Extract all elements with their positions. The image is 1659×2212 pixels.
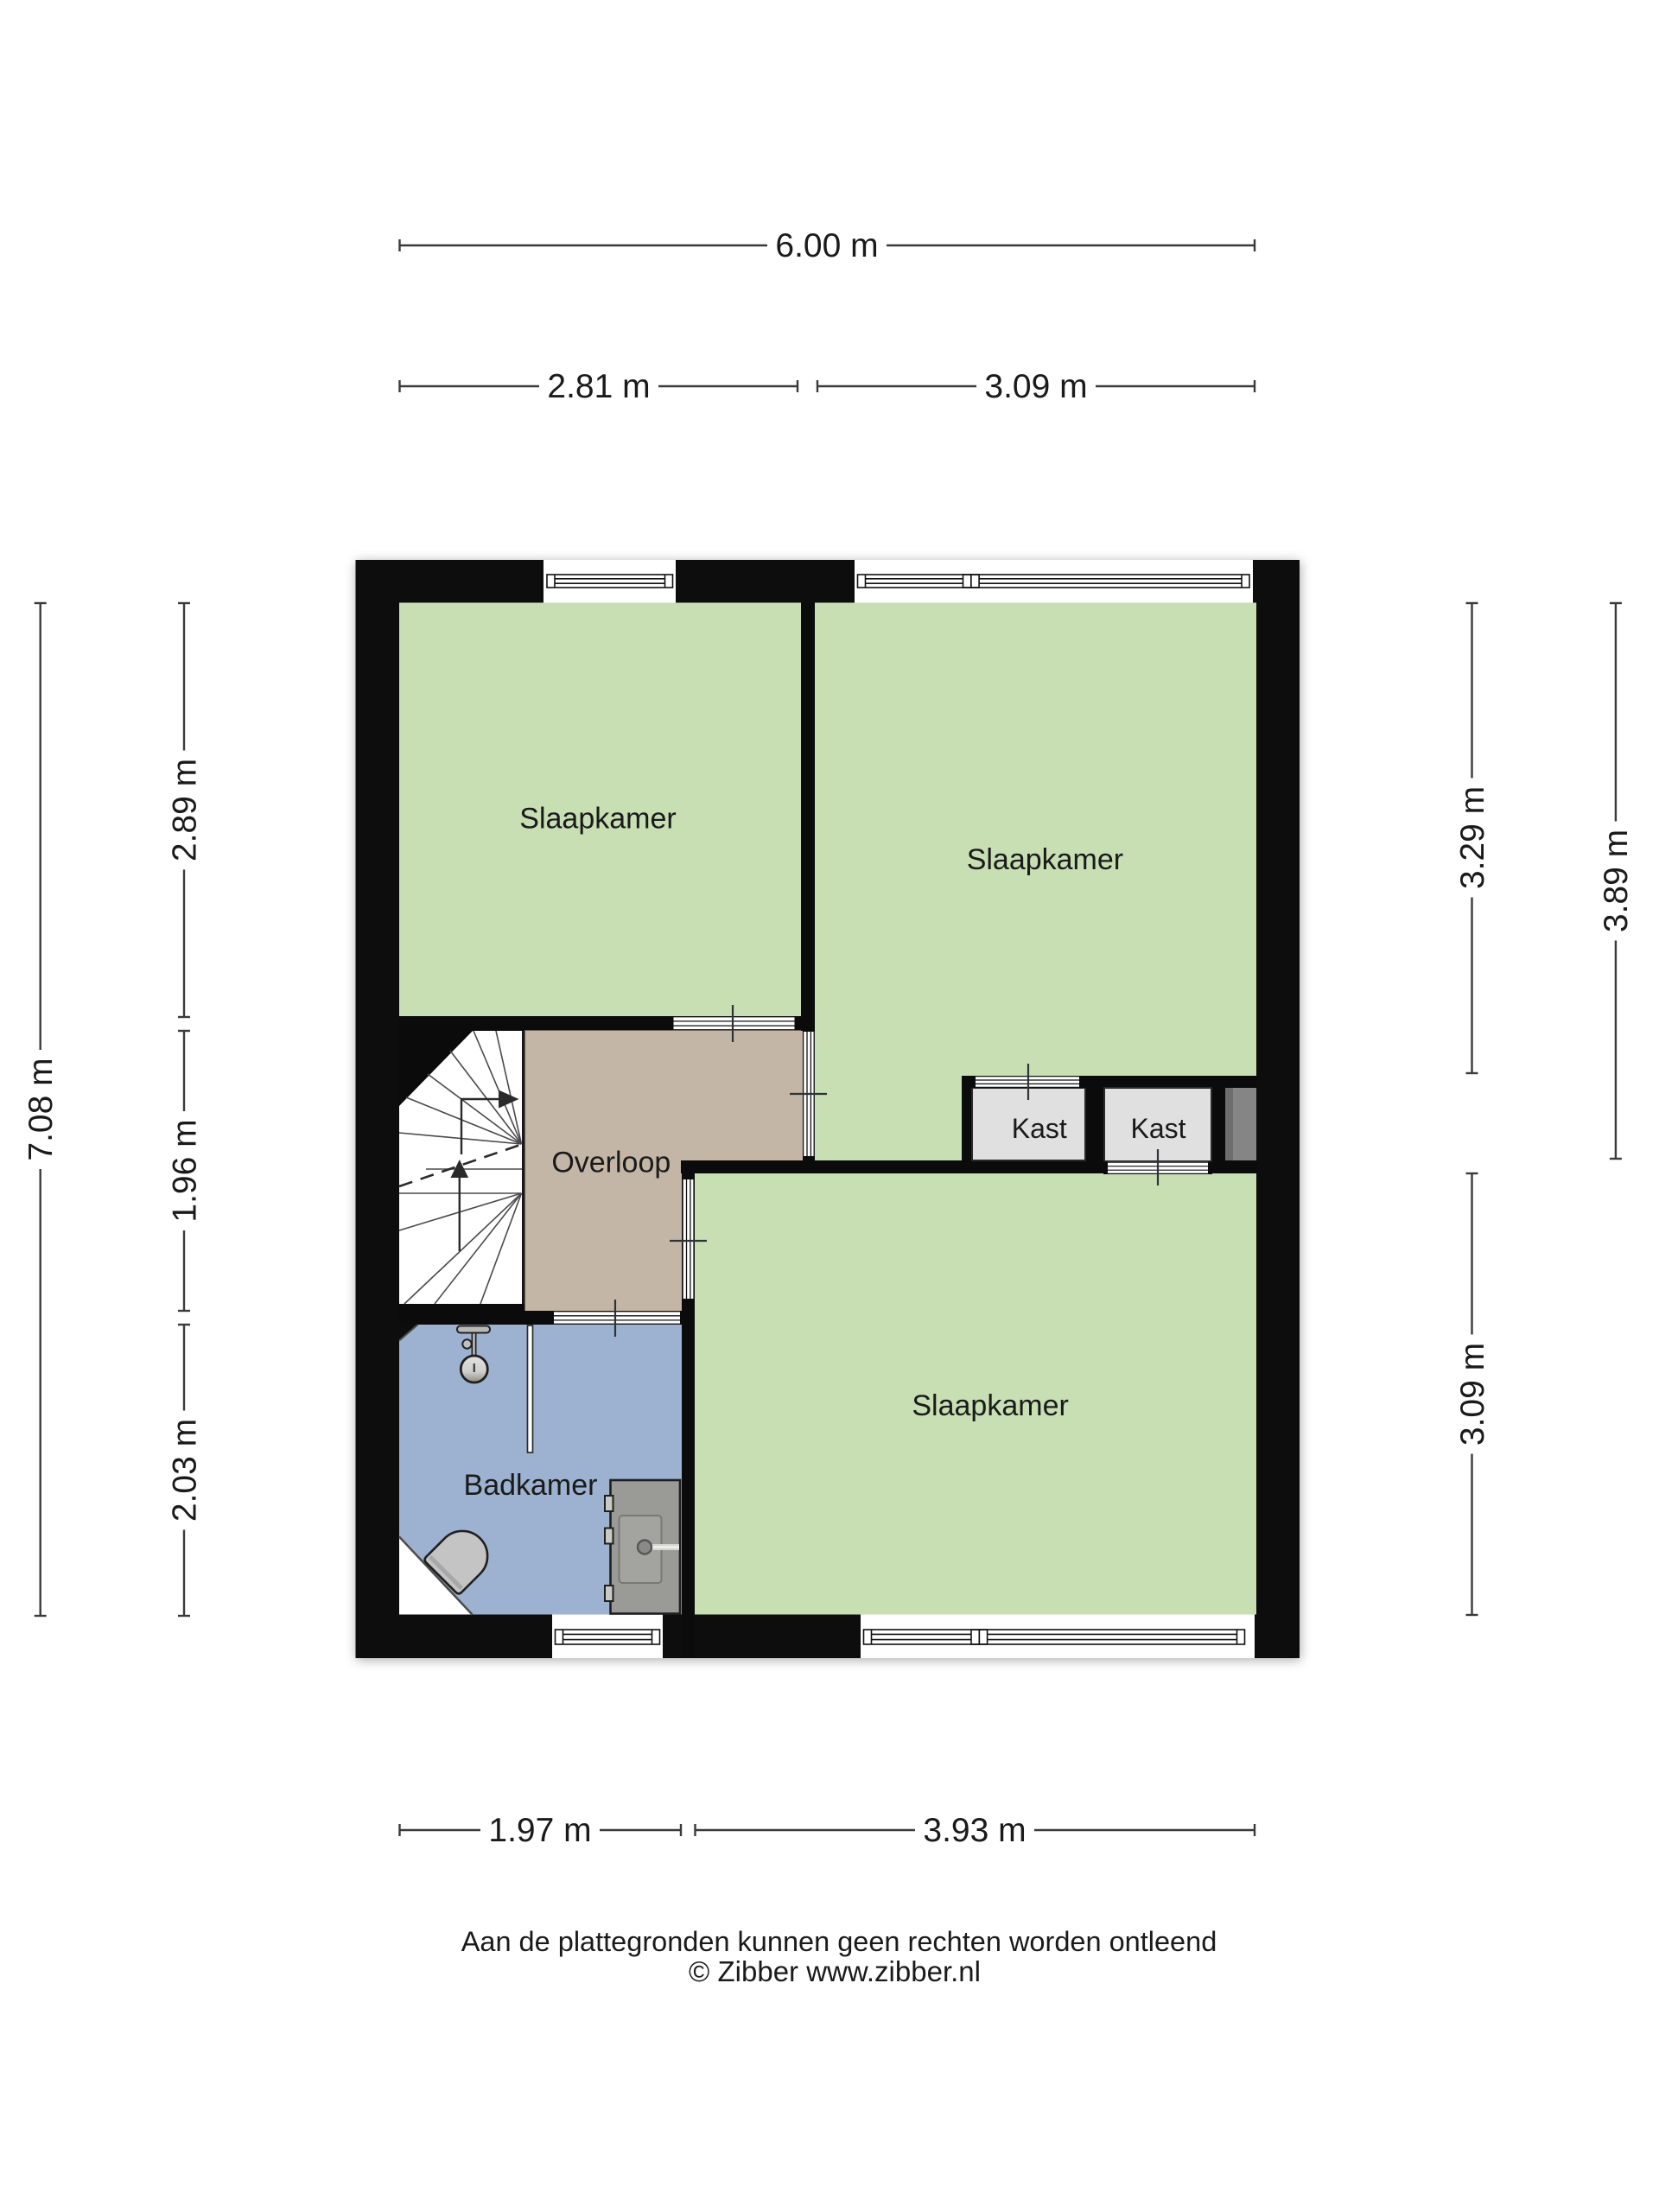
- svg-text:Kast: Kast: [1130, 1113, 1185, 1144]
- svg-text:1.96 m: 1.96 m: [166, 1119, 203, 1222]
- svg-text:3.29 m: 3.29 m: [1454, 786, 1491, 889]
- svg-text:Aan de plattegronden kunnen ge: Aan de plattegronden kunnen geen rechten…: [461, 1926, 1217, 1957]
- svg-text:Badkamer: Badkamer: [464, 1469, 598, 1502]
- svg-text:2.81 m: 2.81 m: [547, 368, 650, 405]
- svg-text:3.93 m: 3.93 m: [923, 1812, 1026, 1849]
- svg-text:1.97 m: 1.97 m: [488, 1812, 591, 1849]
- svg-text:6.00 m: 6.00 m: [775, 227, 878, 264]
- svg-text:7.08 m: 7.08 m: [22, 1058, 60, 1160]
- svg-text:3.89 m: 3.89 m: [1598, 829, 1635, 932]
- svg-text:2.89 m: 2.89 m: [166, 759, 203, 861]
- svg-text:Kast: Kast: [1012, 1113, 1067, 1144]
- svg-text:2.03 m: 2.03 m: [166, 1419, 203, 1522]
- svg-text:© Zibber www.zibber.nl: © Zibber www.zibber.nl: [689, 1955, 981, 1987]
- svg-text:Slaapkamer: Slaapkamer: [912, 1389, 1068, 1422]
- svg-text:Slaapkamer: Slaapkamer: [967, 843, 1123, 876]
- svg-text:Slaapkamer: Slaapkamer: [519, 803, 676, 836]
- svg-text:3.09 m: 3.09 m: [1454, 1343, 1491, 1446]
- svg-text:Overloop: Overloop: [551, 1147, 671, 1179]
- svg-text:3.09 m: 3.09 m: [984, 368, 1087, 405]
